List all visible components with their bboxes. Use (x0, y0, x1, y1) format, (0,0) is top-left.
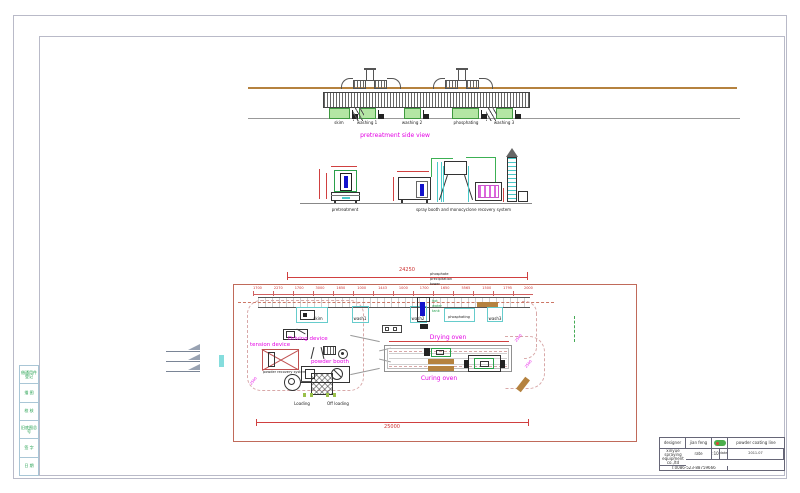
hot-water-note: tank (432, 309, 440, 313)
logo-cell (712, 438, 728, 449)
designer-value: jian feng (686, 438, 712, 449)
revision-cell: 校 核 (20, 403, 38, 421)
overall-top-dimension: 24250 (287, 268, 527, 274)
control-box-square (393, 327, 397, 331)
cad-drawing-sheet: { "colors": { "dimension_red": "#cc3030"… (0, 0, 800, 493)
revision-strip: 借通用件登记 描 图 校 核 旧底图总号 签 字 日 期 (19, 365, 39, 476)
company-logo (714, 440, 726, 446)
curing-oven-label: Curing oven (384, 376, 494, 383)
stack-cap (456, 68, 468, 70)
arrow-flag (188, 344, 200, 350)
oven-fan-cap (424, 348, 430, 356)
tower-note: precipitation (430, 277, 452, 281)
tank-label: skim (325, 121, 353, 126)
cyclone-leg (468, 166, 469, 202)
tank-skim (329, 108, 350, 119)
hood-elbow (433, 78, 445, 89)
stack-base-box (518, 191, 528, 202)
hot-water-note: hot (432, 299, 438, 303)
project-name: powder coating line (728, 438, 784, 449)
tower-note: phosphate (430, 272, 449, 276)
hanger-mark (326, 393, 329, 397)
hanger-mark (310, 393, 313, 397)
phone-number: T:0086-523-88759666 (660, 466, 728, 470)
up-arrow-icon (506, 148, 518, 157)
conveyor-band (323, 92, 530, 108)
logo-dot (716, 442, 719, 445)
hot-tank-pump (420, 324, 428, 329)
drying-oven-label: Drying oven (384, 335, 512, 342)
exhaust-stack (458, 69, 466, 81)
burner-bar (428, 359, 454, 364)
segment-dim: 1500 (482, 286, 491, 290)
revision-cell: 签 字 (20, 439, 38, 457)
recovery-fan-inner (288, 378, 295, 385)
hood-filter-bank (353, 80, 366, 89)
segment-dim: 3000 (316, 286, 325, 290)
cyan-tick (219, 355, 224, 367)
ladder (486, 107, 497, 121)
dim-tick (527, 272, 528, 280)
ladder (353, 107, 364, 121)
burner-bar (428, 366, 454, 371)
loading-label: Loading (284, 402, 320, 407)
tank-washing2 (404, 108, 421, 119)
arrow-flag (188, 354, 200, 360)
tank-label: phosphating (448, 121, 484, 126)
leg (401, 200, 403, 203)
dim-line (319, 169, 320, 199)
segment-dim: 2270 (274, 286, 283, 290)
revision-cell: 日 期 (20, 458, 38, 475)
date-label: date (720, 449, 728, 460)
sieve-box (323, 346, 336, 355)
dim-tick (528, 419, 529, 426)
workpiece-blue (420, 184, 424, 196)
date-value: 2011.07 (728, 449, 784, 460)
dim-line (397, 171, 429, 172)
arrow-flag (188, 364, 200, 370)
pipe-cyan (437, 162, 438, 202)
duct-green (466, 157, 496, 158)
duct-green (431, 158, 453, 159)
plan-station-label: skim (306, 317, 330, 322)
direction-arrow (166, 364, 200, 372)
booth-fan-dot (341, 352, 344, 355)
dim-line (503, 188, 504, 202)
detail-left-caption: pretreatment (320, 208, 370, 213)
revision-cell: 旧底图总号 (20, 421, 38, 439)
ground-line-2 (300, 203, 532, 204)
green-dash-mark (574, 316, 575, 342)
company-name: xinyue spraying equipment co.,ltd (660, 449, 686, 466)
segment-dim: 1443 (378, 286, 387, 290)
plan-station-label: phosphating (438, 315, 480, 319)
company-line: equipment co.,ltd (660, 457, 686, 465)
dim-line (393, 177, 394, 201)
recovery-filter (311, 373, 333, 395)
segment-dim: 1000 (357, 286, 366, 290)
segment-dim: 1795 (503, 286, 512, 290)
segment-dim: 1650 (441, 286, 450, 290)
tank-label: washing 3 (487, 121, 521, 126)
tank-label: washing 1 (350, 121, 384, 126)
segment-dim: 1000 (399, 286, 408, 290)
hanger-mark (333, 393, 336, 397)
dim-line (256, 422, 528, 423)
pretreat-base-line (331, 195, 360, 196)
segment-dim: 1700 (420, 286, 429, 290)
powder-booth-label: powder booth (298, 359, 362, 365)
stack-cap (364, 68, 376, 70)
plan-station-label: wash3 (481, 317, 509, 322)
detail-right-caption: spray booth and monocyclone recovery sys… (396, 208, 531, 213)
curing-fan-cap (464, 360, 469, 368)
tension-device-label: tension device (250, 342, 316, 348)
cyclone-cylinder (444, 161, 467, 175)
segment-dim: 2000 (524, 286, 533, 290)
hood-filter-bank (374, 80, 387, 89)
recovery-duct (300, 381, 311, 382)
dim-line (326, 173, 327, 199)
tank-washing3 (496, 108, 513, 119)
title-block: designer jian feng powder coating line r… (659, 437, 785, 471)
control-box-square (385, 327, 389, 331)
segment-dim-row: 1700 2270 1700 3000 1650 1000 1443 1000 … (253, 286, 533, 290)
segment-dim: 1700 (253, 286, 262, 290)
segment-dim: 5565 (461, 286, 470, 290)
direction-arrow (166, 344, 200, 352)
powder-recovery-label: powder recovery system (263, 370, 306, 374)
hood-filter-bank (445, 80, 458, 89)
segment-dim: 1700 (295, 286, 304, 290)
tank-pump (423, 110, 429, 119)
cyclone-leg (443, 166, 444, 202)
curing-fan-core (480, 361, 489, 367)
tank-phosphating (452, 108, 479, 119)
leg (334, 201, 336, 203)
revision-cell: 借通用件登记 (20, 366, 38, 384)
duct-green (495, 157, 496, 183)
revision-cell: 描 图 (20, 384, 38, 402)
exhaust-stack (366, 69, 374, 81)
workpiece-blue (344, 176, 348, 188)
designer-label: designer (660, 438, 686, 449)
dim-line (287, 277, 527, 278)
hood-elbow (341, 78, 353, 89)
leg (355, 201, 357, 203)
direction-arrow (166, 354, 200, 362)
hot-tank-blue (420, 302, 425, 316)
side-view-caption: pretreatment side view (330, 133, 460, 140)
curing-fan-cap (500, 360, 505, 368)
scale-value: 1:100 (712, 449, 720, 460)
plan-station-label: wash1 (346, 317, 374, 322)
tank-pump (515, 110, 521, 119)
cyan-tick (342, 197, 350, 199)
tension-inner (268, 352, 275, 367)
offloading-label: Off loading (316, 402, 360, 407)
final-stack (507, 157, 517, 202)
hanger-mark (303, 393, 306, 397)
overall-bottom-dimension: 25000 (256, 425, 528, 431)
segment-dim: 1650 (336, 286, 345, 290)
hot-water-note: water (432, 304, 442, 308)
oven-fan-core (436, 350, 444, 355)
tank-pump (378, 110, 384, 119)
filter-cartridges (478, 185, 499, 198)
segment-dim-line (253, 294, 533, 295)
scale-label: rate (686, 449, 712, 460)
leg (426, 200, 428, 203)
tank-label: washing 2 (395, 121, 429, 126)
duct-green (431, 158, 432, 177)
dim-line (331, 166, 357, 167)
hood-filter-bank (466, 80, 479, 89)
